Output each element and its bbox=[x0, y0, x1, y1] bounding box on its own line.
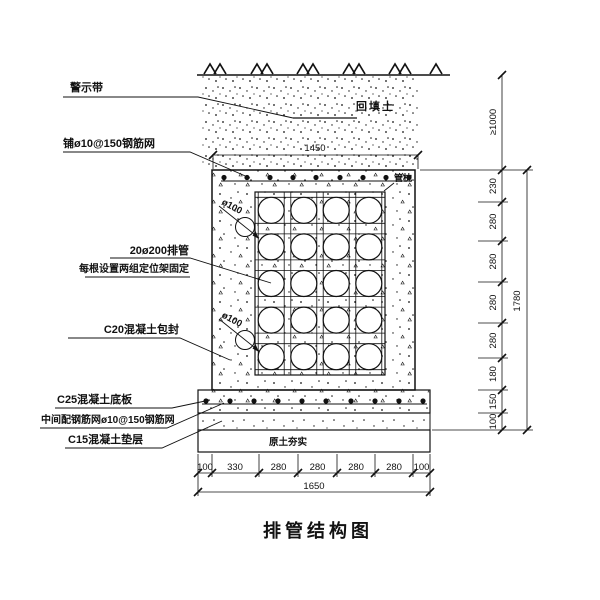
leader-encasement bbox=[68, 338, 230, 360]
dim-right-total: 1780 bbox=[512, 290, 523, 311]
dim-right bbox=[420, 71, 533, 434]
callout-cushion: C15混凝土垫层 bbox=[68, 432, 143, 446]
dim-bottom-seg: 280 bbox=[310, 462, 326, 473]
callout-top-mesh: 铺ø10@150钢筋网 bbox=[63, 136, 155, 150]
callout-pipe-pillow: 管枕 bbox=[394, 172, 412, 183]
dim-right-seg: 280 bbox=[488, 295, 499, 311]
dim-bottom-seg: 280 bbox=[348, 462, 364, 473]
dim-bottom-labels: 100 330 280 280 280 280 100 1650 bbox=[197, 462, 429, 492]
drawing-title: 排管结构图 bbox=[263, 520, 373, 541]
dim-bottom-seg: 100 bbox=[414, 462, 430, 473]
dim-cover-depth: ≥1000 bbox=[488, 109, 499, 135]
duct-bank-drawing: 回填土 bbox=[0, 0, 600, 600]
callout-encasement: C20混凝土包封 bbox=[104, 322, 179, 336]
dim-bottom-seg: 280 bbox=[386, 462, 402, 473]
dim-top-width: 1450 bbox=[304, 143, 325, 154]
dim-bottom-seg: 280 bbox=[271, 462, 287, 473]
dim-right-labels: ≥1000 230 280 280 280 280 180 150 100 17… bbox=[488, 109, 523, 430]
base-slab bbox=[198, 390, 430, 413]
dim-right-seg: 280 bbox=[488, 254, 499, 270]
backfill-label: 回填土 bbox=[356, 99, 395, 113]
dim-right-seg: 280 bbox=[488, 214, 499, 230]
ground-surface bbox=[197, 64, 450, 75]
compacted-subgrade: 原土夯实 bbox=[198, 430, 430, 452]
dim-bottom-seg: 330 bbox=[227, 462, 243, 473]
callout-base-slab: C25混凝土底板 bbox=[57, 392, 133, 406]
ground-hatch-marks bbox=[204, 64, 442, 74]
cushion-layer bbox=[198, 413, 430, 430]
dim-right-seg: 180 bbox=[488, 366, 499, 382]
callout-pipes-line1: 20ø200排管 bbox=[130, 243, 189, 257]
compacted-soil-label: 原土夯实 bbox=[269, 436, 308, 448]
dim-bottom-total: 1650 bbox=[303, 481, 324, 492]
dim-right-seg: 150 bbox=[488, 394, 499, 410]
pipe-grid bbox=[236, 192, 386, 375]
callout-warning-tape: 警示带 bbox=[69, 80, 103, 94]
callout-slab-mesh: 中间配钢筋网ø10@150钢筋网 bbox=[41, 413, 175, 426]
dim-right-seg: 230 bbox=[488, 178, 499, 194]
dim-right-ticks bbox=[498, 71, 531, 434]
dim-right-seg: 100 bbox=[488, 414, 499, 430]
dim-bottom-seg: 100 bbox=[197, 462, 213, 473]
callout-pipes-line2: 每根设置两组定位架固定 bbox=[79, 262, 189, 275]
dim-right-seg: 280 bbox=[488, 333, 499, 349]
drawing-canvas: 回填土 bbox=[0, 0, 600, 600]
